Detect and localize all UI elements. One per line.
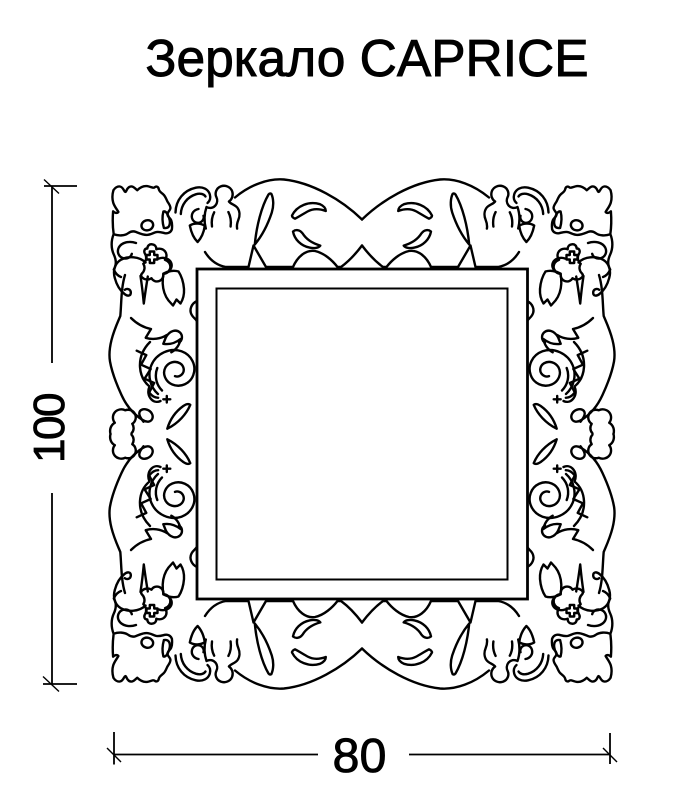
svg-text:100: 100 (25, 394, 74, 463)
svg-text:80: 80 (333, 729, 387, 783)
svg-text:Зеркало CAPRICE: Зеркало CAPRICE (145, 29, 588, 87)
